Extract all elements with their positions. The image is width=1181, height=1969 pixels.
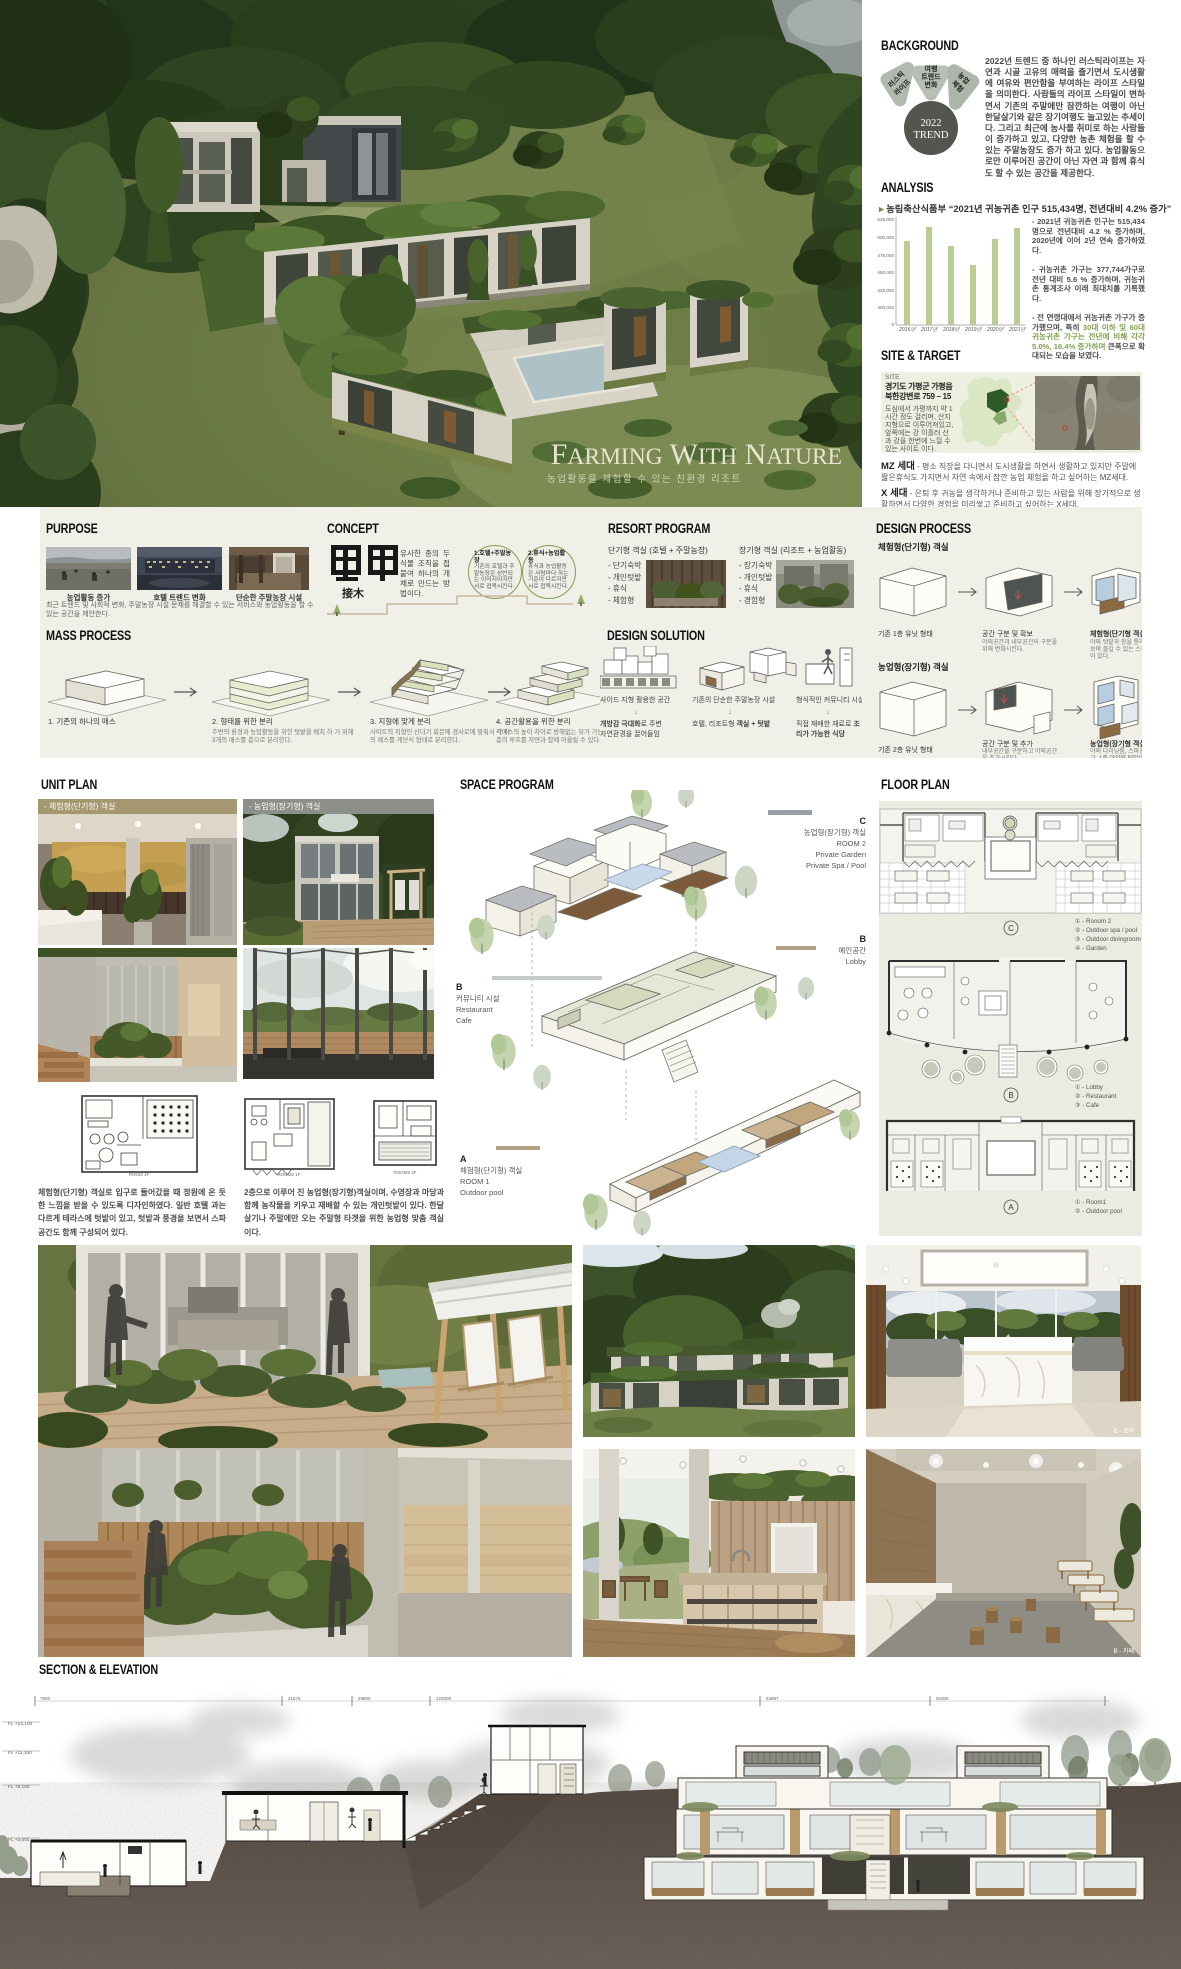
- svg-text:ROOM2 2F: ROOM2 2F: [393, 1170, 416, 1174]
- svg-text:2019년: 2019년: [964, 326, 983, 332]
- svg-text:B: B: [456, 982, 463, 992]
- svg-text:2016년: 2016년: [898, 326, 917, 332]
- svg-text:C: C: [1008, 924, 1014, 933]
- svg-text:사이트의 지형인 산더기 회문에 경사로에 맞춰서 각 각: 사이트의 지형인 산더기 회문에 경사로에 맞춰서 각 각: [370, 727, 510, 736]
- svg-text:B - 카페: B - 카페: [1114, 1647, 1134, 1655]
- svg-text:변화: 변화: [925, 80, 938, 89]
- svg-text:커뮤니티 시설: 커뮤니티 시설: [456, 994, 500, 1003]
- svg-text:농업형(장기형) 객실: 농업형(장기형) 객실: [804, 827, 866, 837]
- svg-text:기존 1층 유닛 형태: 기존 1층 유닛 형태: [878, 629, 933, 638]
- svg-text:2022: 2022: [921, 118, 942, 129]
- svg-text:사이드 지형 활용한 공간: 사이드 지형 활용한 공간: [600, 695, 671, 704]
- svg-text:① - Room1: ① - Room1: [1075, 1199, 1107, 1206]
- svg-text:이 있다.: 이 있다.: [1090, 652, 1110, 660]
- svg-text:농업활동을 체험할 수 있는 친환경 리조트: 농업활동을 체험할 수 있는 친환경 리조트: [547, 473, 742, 485]
- svg-text:리가 가능한 식당: 리가 가능한 식당: [796, 729, 846, 738]
- svg-text:Cafe: Cafe: [456, 1016, 472, 1025]
- svg-text:내부공간을 구분하고 야외공간: 내부공간을 구분하고 야외공간: [982, 747, 1058, 755]
- svg-text:0: 0: [891, 322, 894, 327]
- svg-text:③ - Outdoor diningroom: ③ - Outdoor diningroom: [1075, 936, 1141, 943]
- svg-text:기존의 단순한 주말농장 시설: 기존의 단순한 주말농장 시설: [692, 695, 775, 704]
- svg-text:직접 재배한 재료로 조: 직접 재배한 재료로 조: [796, 719, 860, 728]
- svg-text:ROOM 2: ROOM 2: [836, 839, 866, 848]
- svg-text:Outdoor pool: Outdoor pool: [460, 1188, 504, 1197]
- svg-text:C: C: [860, 816, 867, 826]
- svg-text:의 매스를 계단식 형태로 분리한다.: 의 매스를 계단식 형태로 분리한다.: [370, 735, 460, 744]
- svg-text:③ - Cafe: ③ - Cafe: [1075, 1102, 1100, 1109]
- svg-text:공간 구분 및 추가: 공간 구분 및 추가: [982, 739, 1033, 748]
- svg-text:82000: 82000: [936, 1696, 949, 1701]
- svg-text:② - Outdoor pool: ② - Outdoor pool: [1075, 1208, 1122, 1215]
- svg-text:A: A: [460, 1154, 467, 1164]
- svg-text:21575: 21575: [288, 1696, 301, 1701]
- svg-text:Restaurant: Restaurant: [456, 1005, 494, 1014]
- svg-text:체험형(단기형) 객실: 체험형(단기형) 객실: [460, 1165, 522, 1175]
- svg-text:예인공간: 예인공간: [838, 945, 866, 955]
- svg-text:야외공간과 내부공간의 구분을: 야외공간과 내부공간의 구분을: [982, 638, 1058, 646]
- svg-text:④ - Garden: ④ - Garden: [1075, 945, 1107, 952]
- svg-text:개방감 극대화로 주변: 개방감 극대화로 주변: [600, 719, 662, 728]
- svg-text:① - Rooom 2: ① - Rooom 2: [1075, 918, 1112, 925]
- svg-text:400,000: 400,000: [877, 305, 894, 310]
- svg-text:↓: ↓: [728, 707, 732, 716]
- svg-text:↓: ↓: [634, 707, 638, 716]
- svg-text:보며 즐길 수 있는 스파공간: 보며 즐길 수 있는 스파공간: [1090, 645, 1142, 653]
- svg-text:자연환경을 끌어들임: 자연환경을 끌어들임: [600, 729, 660, 738]
- svg-text:기존 2층 유닛 형태: 기존 2층 유닛 형태: [878, 745, 933, 754]
- svg-text:야외 다이닝룸, 스파공간이 있: 야외 다이닝룸, 스파공간이 있: [1090, 747, 1142, 755]
- svg-text:각매스의 높이 차이로 방해없는 뷰가 가능하고, 각: 각매스의 높이 차이로 방해없는 뷰가 가능하고, 각: [496, 727, 600, 736]
- svg-text:Private Spa / Pool: Private Spa / Pool: [806, 861, 866, 870]
- svg-text:농업형(장기형) 객실: 농업형(장기형) 객실: [878, 662, 949, 672]
- svg-text:② - Outdoor spa / pool: ② - Outdoor spa / pool: [1075, 927, 1137, 934]
- svg-text:ROOM2 1F: ROOM2 1F: [277, 1172, 300, 1176]
- svg-text:4. 공간활용을 위한 분리: 4. 공간활용을 위한 분리: [496, 716, 571, 726]
- svg-text:트렌드: 트렌드: [921, 72, 941, 81]
- svg-text:주변의 환경과 농업활동을 위한 텃밭을 배치 하 기 위해: 주변의 환경과 농업활동을 위한 텃밭을 배치 하 기 위해: [212, 727, 354, 736]
- svg-text:7900: 7900: [40, 1696, 51, 1701]
- svg-text:야외 텃밭과 창을 통해 텃밭을: 야외 텃밭과 창을 통해 텃밭을: [1090, 638, 1142, 646]
- svg-text:425,000: 425,000: [877, 288, 894, 293]
- svg-text:호텔, 리조트형 객실 + 텃밭: 호텔, 리조트형 객실 + 텃밭: [692, 719, 771, 728]
- svg-text:① - Lobby: ① - Lobby: [1075, 1084, 1104, 1091]
- svg-text:위해 변화시킨다.: 위해 변화시킨다.: [982, 645, 1024, 653]
- svg-text:② - Restaurant: ② - Restaurant: [1075, 1093, 1117, 1100]
- svg-text:3. 지형에 맞게 분리: 3. 지형에 맞게 분리: [370, 716, 431, 726]
- svg-text:여행: 여행: [925, 64, 938, 73]
- svg-text:ROOM 1: ROOM 1: [460, 1177, 490, 1186]
- svg-text:A: A: [1008, 1203, 1014, 1212]
- svg-text:형식적인 커뮤니티 시설: 형식적인 커뮤니티 시설: [796, 695, 862, 704]
- svg-text:2018년: 2018년: [942, 326, 961, 332]
- svg-text:공간 구분 및 확보: 공간 구분 및 확보: [982, 629, 1033, 638]
- svg-text:Lobby: Lobby: [846, 957, 867, 966]
- svg-text:2. 형태를 위한 분리: 2. 형태를 위한 분리: [212, 717, 273, 726]
- svg-text:2020년: 2020년: [986, 326, 1005, 332]
- svg-text:B - 로비: B - 로비: [1114, 1427, 1134, 1435]
- svg-text:64897: 64897: [766, 1696, 779, 1701]
- svg-text:123000: 123000: [436, 1696, 452, 1701]
- svg-text:3개의 매스를 층으로 분리한다.: 3개의 매스를 층으로 분리한다.: [212, 735, 292, 744]
- svg-text:Private Garden: Private Garden: [816, 850, 866, 859]
- svg-text:29805: 29805: [358, 1696, 371, 1701]
- svg-text:450,000: 450,000: [877, 270, 894, 275]
- svg-text:2017년: 2017년: [920, 326, 939, 332]
- svg-text:농업형(장기형 객실): 농업형(장기형 객실): [1090, 739, 1142, 748]
- svg-text:475,000: 475,000: [877, 253, 894, 258]
- svg-text:체험형(단기형 객실): 체험형(단기형 객실): [1090, 629, 1142, 638]
- svg-text:층의 루프를 자연과 함께 어울릴 수 있다.: 층의 루프를 자연과 함께 어울릴 수 있다.: [496, 735, 600, 744]
- svg-text:500,000: 500,000: [877, 235, 894, 240]
- svg-text:B: B: [860, 934, 867, 944]
- svg-text:1. 기존의 하나의 매스: 1. 기존의 하나의 매스: [48, 716, 116, 726]
- svg-text:TREND: TREND: [914, 130, 949, 141]
- svg-text:체험형(단기형) 객실: 체험형(단기형) 객실: [878, 542, 949, 552]
- svg-text:↓: ↓: [826, 707, 830, 716]
- svg-text:B: B: [1008, 1091, 1013, 1100]
- svg-text:ROOM 1F: ROOM 1F: [129, 1172, 150, 1176]
- svg-text:525,000: 525,000: [877, 217, 894, 222]
- svg-text:2021년: 2021년: [1008, 326, 1027, 332]
